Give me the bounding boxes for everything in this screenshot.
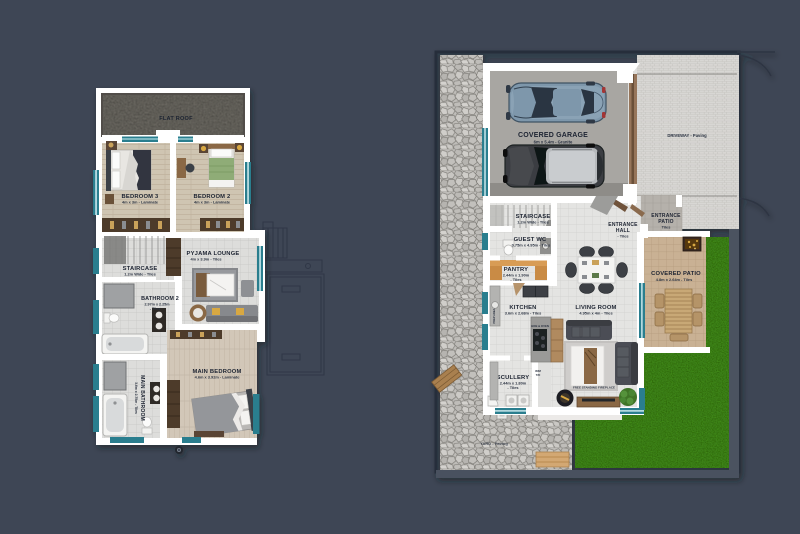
svg-text:FLAT ROOF: FLAT ROOF	[159, 116, 193, 122]
svg-text:4m x 3.9m - Tiles: 4m x 3.9m - Tiles	[190, 257, 221, 262]
svg-text:3.6m x 2.68m - Tiles: 3.6m x 2.68m - Tiles	[505, 311, 541, 316]
svg-text:4.6m x 3.92m - Laminate: 4.6m x 3.92m - Laminate	[195, 375, 241, 380]
svg-text:FREE STANDING FIREPLACE: FREE STANDING FIREPLACE	[573, 386, 615, 390]
svg-text:DRIVEWAY - Paving: DRIVEWAY - Paving	[667, 133, 707, 138]
svg-text:- Tiles: - Tiles	[507, 385, 518, 390]
svg-text:- Tiles: - Tiles	[510, 277, 521, 282]
svg-text:PREP AREA: PREP AREA	[492, 308, 496, 323]
svg-text:3.6m x 2.75m - Tiles: 3.6m x 2.75m - Tiles	[134, 382, 138, 414]
svg-text:4m x 3m - Laminate: 4m x 3m - Laminate	[122, 200, 159, 205]
svg-text:0.75m x 4.95m - Tiles: 0.75m x 4.95m - Tiles	[512, 243, 551, 248]
svg-text:2.97m x 2.25m: 2.97m x 2.25m	[144, 303, 170, 307]
svg-text:Tiles: Tiles	[662, 225, 671, 230]
svg-text:4.95m x 4m - Tiles: 4.95m x 4m - Tiles	[579, 311, 612, 316]
svg-text:- Tiles: - Tiles	[150, 307, 161, 311]
svg-text:MAIN BATHROOM: MAIN BATHROOM	[139, 375, 145, 421]
svg-text:BATHROOM 2: BATHROOM 2	[141, 296, 179, 302]
svg-text:T/D: T/D	[536, 373, 541, 377]
svg-text:HOB & OVEN: HOB & OVEN	[531, 324, 549, 328]
svg-text:4m x 3m - Laminate: 4m x 3m - Laminate	[194, 200, 231, 205]
svg-text:4.8m x 2.64m - Tiles: 4.8m x 2.64m - Tiles	[656, 277, 692, 282]
svg-text:1.2m Wide - Tiles: 1.2m Wide - Tiles	[124, 272, 155, 277]
svg-text:YARD - Paving: YARD - Paving	[480, 441, 508, 446]
svg-text:6m x 5.4m - Granite: 6m x 5.4m - Granite	[534, 140, 573, 145]
svg-text:1.2m Wide - Tiles: 1.2m Wide - Tiles	[517, 220, 548, 225]
svg-text:- Tiles: - Tiles	[617, 234, 628, 239]
svg-text:COVERED GARAGE: COVERED GARAGE	[518, 132, 588, 139]
